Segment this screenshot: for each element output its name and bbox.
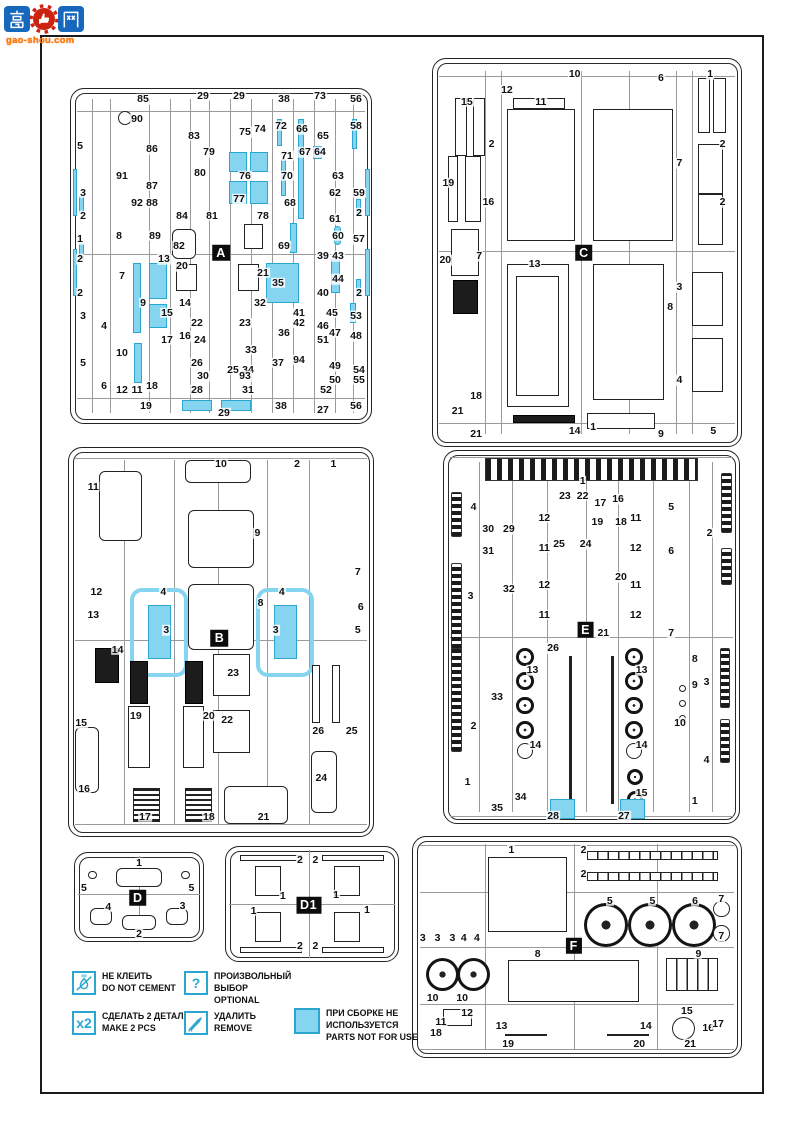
part-number: 62 xyxy=(328,187,342,198)
part-number: 17 xyxy=(711,1019,725,1030)
part-number: 40 xyxy=(316,287,330,298)
part-number: 70 xyxy=(280,171,294,182)
part-number: 60 xyxy=(331,231,345,242)
part-shape-rect xyxy=(465,156,480,222)
part-number: 27 xyxy=(316,404,330,415)
part-number: 79 xyxy=(202,147,216,158)
part-number: 39 xyxy=(316,251,330,262)
part-shape-track xyxy=(721,473,731,533)
part-number: 29 xyxy=(502,524,516,535)
part-number: 6 xyxy=(667,546,675,557)
part-number: 4 xyxy=(703,755,711,766)
part-number: 19 xyxy=(501,1039,515,1050)
part-number: 67 xyxy=(298,147,312,158)
part-shape-rect xyxy=(322,855,384,861)
part-shape-dark xyxy=(185,661,203,704)
part-shape-circle xyxy=(679,700,686,707)
part-number: 10 xyxy=(214,458,228,469)
part-shape-rect xyxy=(713,78,725,132)
part-number: 1 xyxy=(691,795,699,806)
runner-line xyxy=(110,99,111,413)
part-number: 3 xyxy=(419,933,427,944)
part-number: 6 xyxy=(100,381,108,392)
legend-not-for-use: ПРИ СБОРКЕ НЕ ИСПОЛЬЗУЕТСЯ PARTS NOT FOR… xyxy=(294,1008,422,1044)
part-shape-rect xyxy=(698,78,710,132)
part-number: 3 xyxy=(703,676,711,687)
part-shape-rect xyxy=(593,109,673,241)
part-number: 1 xyxy=(279,891,287,902)
part-shape-bar xyxy=(611,656,614,805)
part-number: 18 xyxy=(614,516,628,527)
legend-text-ru: НЕ КЛЕИТЬ xyxy=(102,971,176,983)
part-number: 6 xyxy=(657,73,665,84)
part-number: 21 xyxy=(596,628,610,639)
part-number: 3 xyxy=(79,187,87,198)
part-number: 7 xyxy=(717,931,725,942)
part-number: 29 xyxy=(232,90,246,101)
part-shape-rect xyxy=(587,413,655,428)
part-number: 13 xyxy=(495,1021,509,1032)
legend-text-ru: УДАЛИТЬ xyxy=(214,1011,256,1023)
part-number: 2 xyxy=(580,869,588,880)
part-shape-track xyxy=(451,492,461,537)
part-number: 10 xyxy=(673,717,687,728)
part-number: 11 xyxy=(629,580,642,591)
part-number: 13 xyxy=(526,665,540,676)
part-shape-track xyxy=(720,648,730,708)
legend-text-en: MAKE 2 PCS xyxy=(102,1023,190,1035)
part-number: 7 xyxy=(354,567,362,578)
part-number: 25 xyxy=(552,539,566,550)
legend-text-en: REMOVE xyxy=(214,1023,256,1035)
part-number: 7 xyxy=(475,251,483,262)
legend-text-en: OPTIONAL xyxy=(214,995,310,1007)
part-shape-hl xyxy=(365,249,370,296)
part-number: 45 xyxy=(325,308,339,319)
part-shape-hl xyxy=(250,152,268,172)
part-shape-rect xyxy=(255,866,281,896)
runner-line xyxy=(92,99,93,413)
part-number: 17 xyxy=(138,811,152,822)
part-number: 32 xyxy=(253,298,267,309)
part-number: 13 xyxy=(157,254,171,265)
part-shape-circle xyxy=(679,685,686,692)
part-number: 10 xyxy=(455,992,469,1003)
part-number: 12 xyxy=(537,513,551,524)
part-number: 73 xyxy=(313,90,327,101)
sprue-label-c: C xyxy=(575,244,593,261)
part-number: 56 xyxy=(349,94,363,105)
part-number: 51 xyxy=(316,334,330,345)
part-number: 3 xyxy=(162,625,170,636)
part-number: 9 xyxy=(657,429,665,440)
part-number: 53 xyxy=(349,311,363,322)
part-shape-hatchh xyxy=(587,872,718,881)
part-number: 88 xyxy=(145,197,159,208)
part-number: 14 xyxy=(639,1021,653,1032)
part-number: 3 xyxy=(467,591,475,602)
part-number: 1 xyxy=(363,904,371,915)
part-number: 10 xyxy=(568,69,582,80)
part-number: 20 xyxy=(175,261,189,272)
runner-line xyxy=(420,892,735,893)
part-number: 80 xyxy=(193,167,207,178)
part-number: 9 xyxy=(254,528,262,539)
part-number: 15 xyxy=(680,1006,694,1017)
part-number: 26 xyxy=(311,726,325,737)
legend-text-ru: ПРОИЗВОЛЬНЫЙ ВЫБОР xyxy=(214,971,310,995)
part-number: 2 xyxy=(470,721,478,732)
part-number: 20 xyxy=(632,1039,646,1050)
part-number: 16 xyxy=(611,494,625,505)
logo-char-left-icon: 高 xyxy=(4,6,30,32)
part-number: 12 xyxy=(629,609,643,620)
part-number: 52 xyxy=(319,384,333,395)
part-number: 64 xyxy=(313,147,327,158)
part-number: 2 xyxy=(293,458,301,469)
part-number: 7 xyxy=(717,893,725,904)
runner-line xyxy=(293,99,294,413)
part-number: 2 xyxy=(76,287,84,298)
sprue-d-panel: 155432D xyxy=(74,852,204,942)
part-number: 31 xyxy=(241,384,255,395)
part-shape-dark xyxy=(453,280,478,315)
part-number: 72 xyxy=(274,120,288,131)
part-number: 1 xyxy=(464,777,472,788)
part-shape-track xyxy=(721,548,731,585)
part-shape-wheel xyxy=(627,769,643,785)
part-number: 4 xyxy=(104,901,112,912)
part-number: 24 xyxy=(314,773,328,784)
part-shape-bar xyxy=(607,1034,650,1036)
part-number: 17 xyxy=(594,498,608,509)
part-shape-springs xyxy=(485,458,697,480)
part-number: 7 xyxy=(675,158,683,169)
runner-line xyxy=(501,71,502,435)
part-number: 87 xyxy=(145,181,159,192)
part-number: 1 xyxy=(579,476,587,487)
part-number: 83 xyxy=(187,131,201,142)
part-number: 2 xyxy=(355,207,363,218)
part-shape-bar xyxy=(505,1034,548,1036)
part-shape-rect xyxy=(240,855,302,861)
part-number: 38 xyxy=(274,401,288,412)
part-number: 18 xyxy=(429,1028,443,1039)
part-number: 21 xyxy=(451,406,465,417)
sprue-label-f: F xyxy=(566,938,582,955)
part-number: 29 xyxy=(217,408,231,419)
part-number: 3 xyxy=(448,933,456,944)
part-number: 22 xyxy=(190,318,204,329)
part-number: 11 xyxy=(538,609,551,620)
part-number: 86 xyxy=(145,144,159,155)
part-number: 33 xyxy=(490,691,504,702)
part-number: 56 xyxy=(349,401,363,412)
part-number: 14 xyxy=(178,298,192,309)
part-number: 66 xyxy=(295,124,309,135)
part-number: 25 xyxy=(345,726,359,737)
part-number: 15 xyxy=(460,96,474,107)
part-number: 48 xyxy=(349,331,363,342)
watermark-logo: 高 网 gao-shou.com xyxy=(4,4,104,46)
part-number: 8 xyxy=(115,231,123,242)
part-number: 36 xyxy=(277,328,291,339)
part-number: 2 xyxy=(719,197,727,208)
part-number: 2 xyxy=(488,139,496,150)
part-shape-hatchh xyxy=(587,851,718,860)
sprue-d1-panel: 22111122D1 xyxy=(225,846,399,962)
runner-line xyxy=(420,845,735,846)
part-shape-rect xyxy=(692,338,723,392)
part-number: 16 xyxy=(178,331,192,342)
part-number: 2 xyxy=(580,845,588,856)
part-number: 4 xyxy=(460,933,468,944)
part-number: 5 xyxy=(79,358,87,369)
part-number: 24 xyxy=(579,539,593,550)
part-number: 5 xyxy=(76,141,84,152)
runner-line xyxy=(439,76,735,77)
legend-text-ru: ПРИ СБОРКЕ НЕ ИСПОЛЬЗУЕТСЯ xyxy=(326,1008,422,1032)
part-number: 94 xyxy=(292,354,306,365)
part-number: 12 xyxy=(115,384,129,395)
part-number: 24 xyxy=(193,334,207,345)
part-number: 3 xyxy=(79,311,87,322)
part-number: 69 xyxy=(277,241,291,252)
part-number: 5 xyxy=(709,425,717,436)
part-number: 4 xyxy=(675,375,683,386)
part-number: 12 xyxy=(629,542,643,553)
part-number: 1 xyxy=(135,857,143,868)
part-number: 19 xyxy=(139,401,153,412)
part-number: 2 xyxy=(76,254,84,265)
part-shape-rect xyxy=(332,665,340,723)
part-number: 21 xyxy=(683,1039,697,1050)
part-number: 10 xyxy=(426,992,440,1003)
sprue-label-e: E xyxy=(577,621,594,638)
part-number: 18 xyxy=(145,381,159,392)
part-number: 9 xyxy=(691,680,699,691)
part-number: 44 xyxy=(331,274,345,285)
part-shape-rect xyxy=(244,224,264,249)
part-number: 5 xyxy=(354,625,362,636)
sprue-label-b: B xyxy=(211,630,229,647)
part-number: 1 xyxy=(507,845,515,856)
part-number: 26 xyxy=(190,358,204,369)
runner-line xyxy=(450,457,733,458)
part-number: 13 xyxy=(635,665,649,676)
part-number: 43 xyxy=(331,251,345,262)
part-shape-track xyxy=(451,648,461,752)
part-number: 35 xyxy=(271,277,285,288)
part-number: 15 xyxy=(160,308,174,319)
part-number: 35 xyxy=(490,803,504,814)
part-number: 23 xyxy=(238,318,252,329)
part-shape-rect xyxy=(240,947,302,953)
part-number: 37 xyxy=(271,358,285,369)
part-shape-circle xyxy=(181,871,190,880)
part-number: 27 xyxy=(617,810,631,821)
part-number: 2 xyxy=(296,854,304,865)
part-number: 85 xyxy=(136,94,150,105)
runner-line xyxy=(485,71,486,435)
part-number: 3 xyxy=(434,933,442,944)
part-shape-rect xyxy=(255,912,281,942)
part-number: 61 xyxy=(328,214,342,225)
part-number: 23 xyxy=(226,668,240,679)
part-number: 2 xyxy=(296,941,304,952)
runner-line xyxy=(75,824,367,825)
part-number: 2 xyxy=(135,929,143,940)
part-number: 63 xyxy=(331,171,345,182)
remove-icon xyxy=(184,1011,208,1035)
part-number: 28 xyxy=(190,384,204,395)
part-number: 32 xyxy=(502,583,516,594)
legend-remove: УДАЛИТЬ REMOVE xyxy=(184,1011,256,1035)
part-shape-rrect xyxy=(188,510,255,568)
part-number: 13 xyxy=(86,610,100,621)
part-number: 5 xyxy=(80,883,88,894)
part-number: 23 xyxy=(558,490,572,501)
part-number: 18 xyxy=(202,811,216,822)
no-cement-icon xyxy=(72,971,96,995)
legend-text-ru: СДЕЛАТЬ 2 ДЕТАЛИ xyxy=(102,1011,190,1023)
part-number: 4 xyxy=(159,586,167,597)
part-number: 11 xyxy=(538,542,551,553)
part-number: 92 xyxy=(130,197,144,208)
part-number: 2 xyxy=(312,854,320,865)
not-for-use-swatch xyxy=(294,1008,320,1034)
part-number: 6 xyxy=(357,602,365,613)
part-shape-hl xyxy=(73,169,78,216)
part-number: 2 xyxy=(355,287,363,298)
part-number: 2 xyxy=(719,139,727,150)
part-number: 22 xyxy=(576,490,590,501)
part-shape-hl xyxy=(134,343,142,383)
part-number: 7 xyxy=(118,271,126,282)
part-number: 68 xyxy=(283,197,297,208)
part-number: 10 xyxy=(115,348,129,359)
part-shape-wheel xyxy=(516,697,534,715)
part-shape-wheel xyxy=(628,903,672,947)
optional-icon: ? xyxy=(184,971,208,995)
part-number: 14 xyxy=(568,425,582,436)
part-number: 14 xyxy=(111,645,125,656)
part-number: 22 xyxy=(220,714,234,725)
part-number: 8 xyxy=(257,598,265,609)
logo-gear-icon xyxy=(29,4,59,34)
part-shape-circle xyxy=(88,871,97,880)
part-number: 14 xyxy=(635,740,649,751)
part-number: 78 xyxy=(256,211,270,222)
part-number: 9 xyxy=(694,948,702,959)
part-shape-rect xyxy=(448,156,457,222)
part-number: 1 xyxy=(332,890,340,901)
part-shape-rect xyxy=(334,912,360,942)
part-number: 21 xyxy=(257,811,271,822)
part-shape-rect xyxy=(593,264,664,399)
part-number: 82 xyxy=(172,241,186,252)
part-number: 14 xyxy=(529,740,543,751)
part-shape-hl xyxy=(250,181,268,204)
make-2-icon: x2 xyxy=(72,1011,96,1035)
part-number: 84 xyxy=(175,211,189,222)
part-number: 31 xyxy=(481,546,495,557)
part-shape-wheel xyxy=(625,721,643,739)
part-shape-rect xyxy=(692,272,723,326)
part-number: 7 xyxy=(667,628,675,639)
part-number: 59 xyxy=(352,187,366,198)
legend-no-cement: НЕ КЛЕИТЬ DO NOT CEMENT xyxy=(72,971,176,995)
sprue-label-d1: D1 xyxy=(296,897,321,914)
part-shape-rect xyxy=(516,276,559,396)
part-number: 77 xyxy=(232,194,246,205)
part-number: 15 xyxy=(635,788,649,799)
part-number: 11 xyxy=(130,384,143,395)
part-number: 30 xyxy=(481,524,495,535)
part-number: 18 xyxy=(469,390,483,401)
part-number: 12 xyxy=(460,1008,474,1019)
part-number: 30 xyxy=(196,371,210,382)
part-number: 91 xyxy=(115,171,129,182)
part-number: 1 xyxy=(706,69,714,80)
part-shape-wheel xyxy=(457,958,490,991)
sprue-a-panel: 8529293873569058379867574726665586764719… xyxy=(70,88,372,424)
part-number: 3 xyxy=(179,901,187,912)
part-number: 47 xyxy=(328,328,342,339)
logo-char-right-icon: 网 xyxy=(58,6,84,32)
part-number: 9 xyxy=(139,298,147,309)
part-number: 13 xyxy=(528,259,542,270)
part-number: 12 xyxy=(90,586,104,597)
part-shape-bar xyxy=(569,656,572,805)
part-number: 5 xyxy=(667,502,675,513)
part-number: 74 xyxy=(253,124,267,135)
part-number: 20 xyxy=(614,572,628,583)
part-number: 57 xyxy=(352,234,366,245)
part-number: 89 xyxy=(148,231,162,242)
legend-text-en: DO NOT CEMENT xyxy=(102,983,176,995)
part-shape-wheel xyxy=(625,697,643,715)
part-shape-rect xyxy=(473,98,485,156)
part-number: 5 xyxy=(649,896,657,907)
part-number: 11 xyxy=(534,96,547,107)
part-number: 1 xyxy=(76,234,84,245)
part-number: 5 xyxy=(606,896,614,907)
part-shape-rect xyxy=(508,960,639,1002)
sprue-b-panel: 1110219124471386335142319202226251516171… xyxy=(68,447,374,837)
part-number: 1 xyxy=(330,458,338,469)
part-number: 90 xyxy=(130,114,144,125)
part-number: 8 xyxy=(666,301,674,312)
part-number: 71 xyxy=(280,151,294,162)
instruction-sheet: 高 网 gao-shou.com 852929387356 xyxy=(0,0,800,1130)
part-shape-rect xyxy=(507,109,575,241)
legend-make-2: x2 СДЕЛАТЬ 2 ДЕТАЛИ MAKE 2 PCS xyxy=(72,1011,190,1035)
sprue-label-a: A xyxy=(212,244,230,261)
part-shape-rrect xyxy=(116,868,162,887)
part-number: 8 xyxy=(534,948,542,959)
part-shape-hl xyxy=(149,263,167,300)
part-number: 11 xyxy=(434,1017,447,1028)
part-number: 93 xyxy=(238,371,252,382)
part-number: 2 xyxy=(706,528,714,539)
part-number: 26 xyxy=(546,643,560,654)
part-shape-wheel xyxy=(672,903,716,947)
part-number: 20 xyxy=(438,255,452,266)
part-number: 12 xyxy=(500,85,514,96)
part-number: 15 xyxy=(74,718,88,729)
part-shape-dark xyxy=(130,661,148,704)
